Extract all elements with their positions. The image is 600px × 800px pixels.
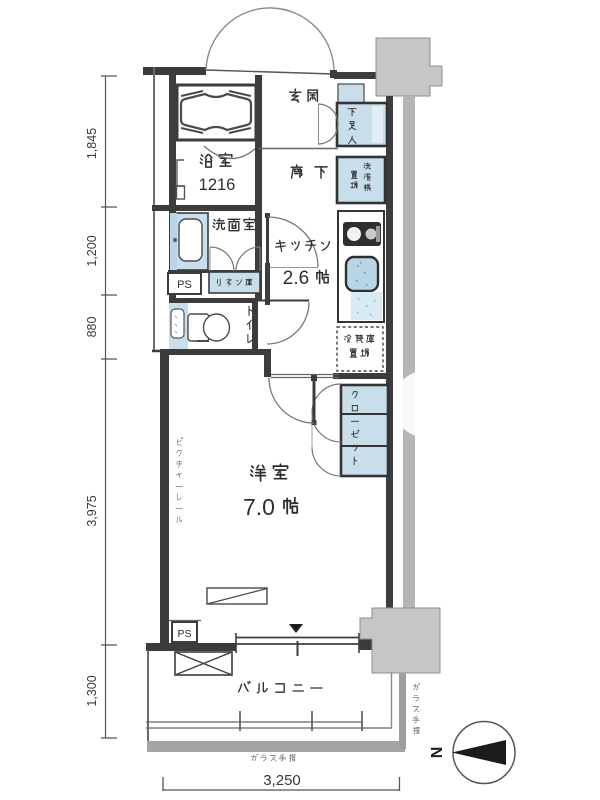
svg-text:7.0: 7.0 [243,494,275,520]
svg-text:N: N [429,747,446,759]
svg-text:3,250: 3,250 [263,772,301,789]
svg-text:1,300: 1,300 [85,675,99,706]
svg-text:1,845: 1,845 [85,128,99,159]
svg-text:1216: 1216 [199,176,236,194]
svg-text:PS: PS [177,628,191,640]
svg-text:PS: PS [177,279,192,291]
svg-text:3,975: 3,975 [85,495,99,526]
svg-text:2.6: 2.6 [283,268,309,289]
svg-text:1,200: 1,200 [85,235,99,266]
svg-text:880: 880 [85,317,99,338]
